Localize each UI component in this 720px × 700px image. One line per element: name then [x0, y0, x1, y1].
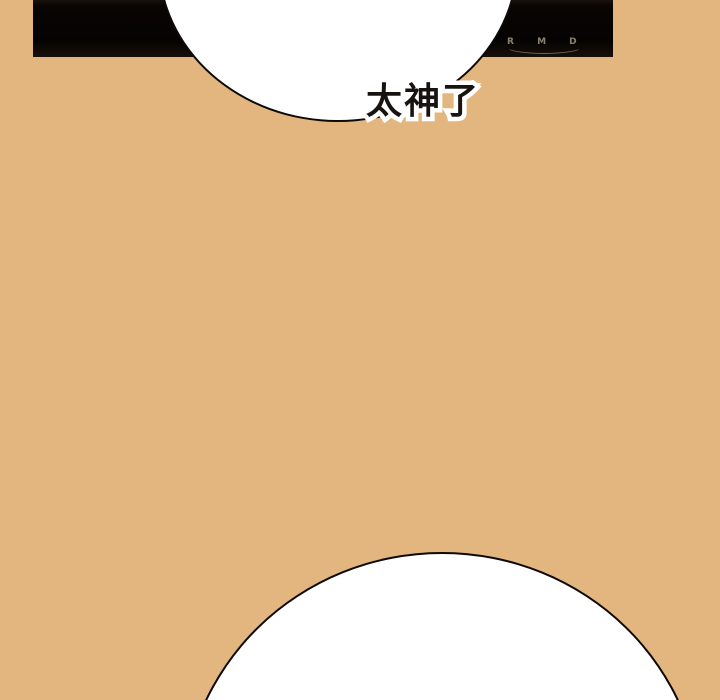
caption-text: 太神了 [366, 84, 480, 120]
speech-bubble-bottom [181, 552, 703, 700]
watermark-text: R M D [507, 37, 587, 47]
watermark: R M D [505, 35, 589, 55]
comic-page: R M D 太神了 太神了 [0, 0, 720, 700]
